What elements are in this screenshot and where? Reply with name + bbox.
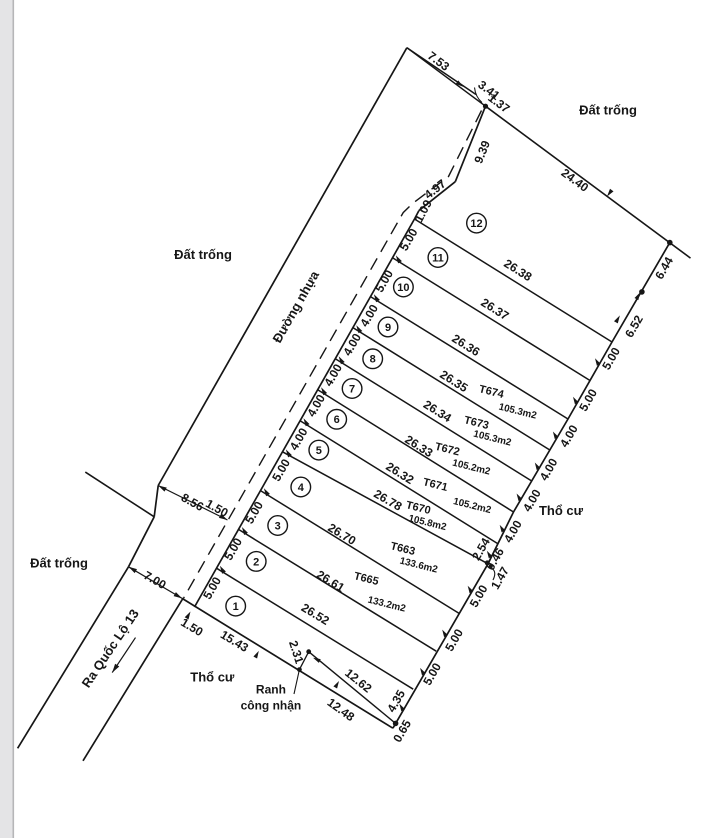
- svg-text:Đất trống: Đất trống: [30, 556, 88, 571]
- svg-text:Thổ cư: Thổ cư: [190, 670, 235, 685]
- svg-text:7: 7: [349, 383, 355, 395]
- svg-text:Đất trống: Đất trống: [579, 103, 637, 118]
- svg-text:2: 2: [253, 556, 259, 568]
- svg-text:4: 4: [298, 482, 305, 494]
- svg-text:9: 9: [385, 322, 391, 334]
- svg-text:Đất trống: Đất trống: [174, 247, 232, 262]
- svg-text:12: 12: [470, 218, 482, 230]
- svg-text:công nhận: công nhận: [241, 699, 302, 713]
- svg-text:6: 6: [334, 414, 340, 426]
- svg-text:11: 11: [432, 252, 444, 264]
- svg-text:10: 10: [397, 282, 409, 294]
- svg-text:3: 3: [275, 520, 281, 532]
- svg-text:5: 5: [316, 445, 322, 457]
- svg-text:1: 1: [233, 601, 239, 613]
- svg-text:Thổ cư: Thổ cư: [539, 503, 584, 518]
- svg-text:Ranh: Ranh: [256, 682, 286, 696]
- svg-text:8: 8: [370, 354, 376, 366]
